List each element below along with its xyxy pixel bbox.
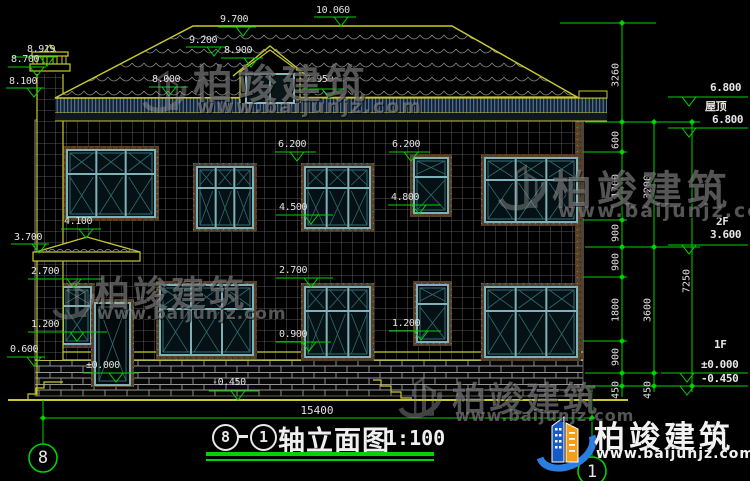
level-label: 8.100 <box>9 76 37 87</box>
dimension-value: 450 <box>643 381 654 399</box>
window <box>481 283 581 361</box>
level-label: 4.500 <box>279 202 307 213</box>
level-label-right: 6.800 <box>710 81 741 94</box>
level-label: 10.060 <box>316 5 350 16</box>
level-label: 0.600 <box>10 344 38 355</box>
dimension-value: 900 <box>611 253 622 271</box>
level-label-right: 3.600 <box>710 228 741 241</box>
level-label: 4.100 <box>64 216 92 227</box>
level-label: 8.700 <box>11 54 39 65</box>
level-label: ±0.000 <box>86 360 120 371</box>
level-label: 3.700 <box>14 232 42 243</box>
title-axis-start: 8 <box>212 424 239 451</box>
title-underline-thin <box>206 459 434 461</box>
level-label-right: 屋顶 <box>705 98 726 114</box>
level-label: 1.200 <box>31 319 59 330</box>
dimension-value: 1800 <box>611 298 622 322</box>
level-label: -0.450 <box>212 377 246 388</box>
dimension-value: 900 <box>611 224 622 242</box>
level-label: 4.800 <box>391 192 419 203</box>
dimension-value: 3260 <box>611 63 622 87</box>
title-underline <box>206 452 434 456</box>
dimension-value: 3600 <box>643 298 654 322</box>
brand-logo-url: www.baijunjz.com <box>596 446 750 462</box>
cad-elevation-canvas: 8.9198.7008.1003.7002.7001.2000.6009.700… <box>0 0 750 481</box>
level-label: 2.700 <box>279 265 307 276</box>
watermark-url: www.baijunjz.com <box>197 96 423 118</box>
window <box>301 283 374 361</box>
window <box>193 163 257 232</box>
drawing-scale: 1:100 <box>385 426 445 450</box>
level-label: 9.700 <box>220 14 248 25</box>
watermark-url: www.baijunjz.com <box>558 200 750 222</box>
window <box>413 281 452 346</box>
axis-number-left: 8 <box>38 448 48 468</box>
level-label: 2.700 <box>31 266 59 277</box>
level-label-right: -0.450 <box>701 372 738 385</box>
level-label: 0.900 <box>279 329 307 340</box>
window <box>410 154 452 217</box>
dimension-value: 600 <box>611 131 622 149</box>
level-label: 8.000 <box>152 74 180 85</box>
dimension-value: 900 <box>611 348 622 366</box>
title-axis-end: 1 <box>250 424 277 451</box>
level-label: 9.200 <box>189 35 217 46</box>
level-label: 1.200 <box>392 318 420 329</box>
window <box>301 163 374 232</box>
axis-number-right: 1 <box>587 462 597 481</box>
level-label-right: ±0.000 <box>701 358 738 371</box>
title-dash <box>238 435 248 438</box>
watermark-url: www.baijunjz.com <box>97 304 287 324</box>
level-label-right: 6.800 <box>712 113 743 126</box>
dimension-value: 7250 <box>682 269 693 293</box>
level-label: 6.200 <box>392 139 420 150</box>
dimension-value: 15400 <box>300 404 333 417</box>
elevation-drawing <box>0 0 750 481</box>
level-label-right: 1F <box>714 338 726 351</box>
window <box>63 146 159 221</box>
level-label: 6.200 <box>278 139 306 150</box>
dimension-value: 450 <box>611 381 622 399</box>
